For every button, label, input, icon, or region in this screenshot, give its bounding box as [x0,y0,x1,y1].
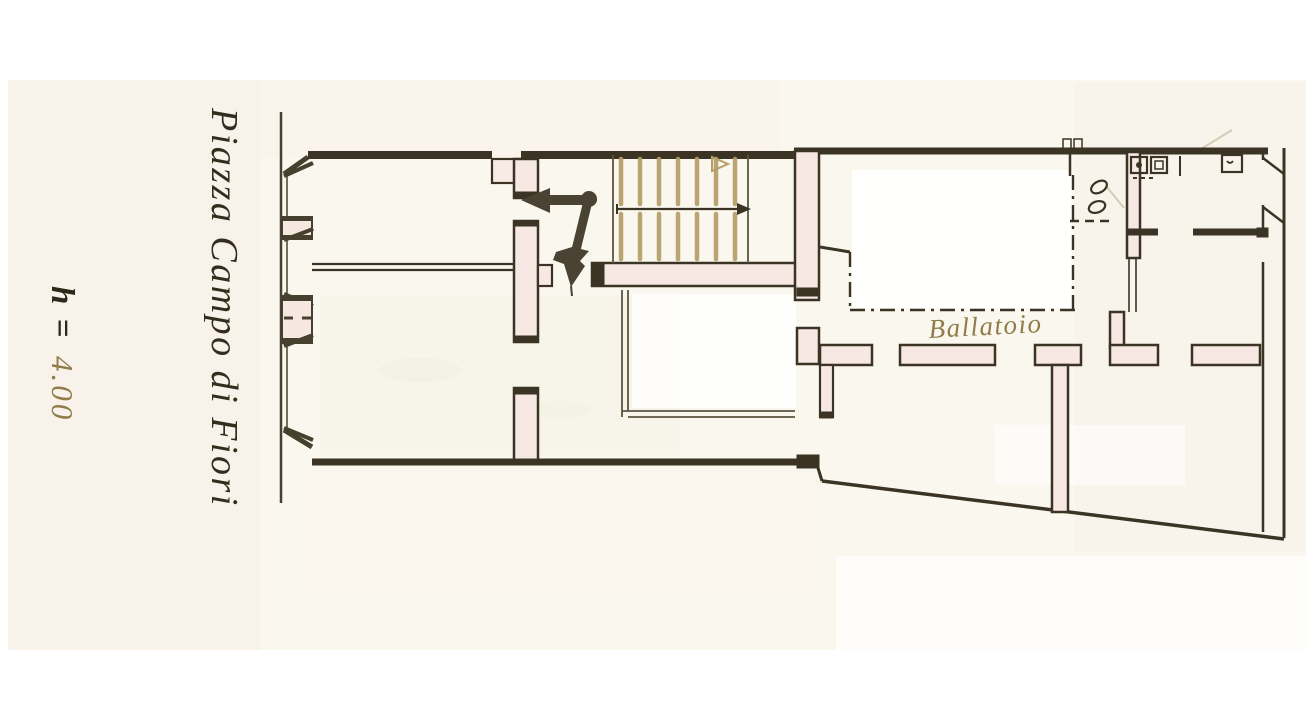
balcony-label: Ballatoio [928,308,1043,344]
tint-bottom [300,470,820,590]
parapet-bar [1035,345,1081,365]
tint-top [260,80,780,158]
balcony-label-text: Ballatoio [928,308,1043,344]
height-prefix-text: h = [44,286,80,340]
wall-end-cap [592,263,604,286]
whiteout-room [852,170,1072,308]
corridor-wall-segment [514,388,538,464]
parapet-stem [1110,312,1124,348]
height-value-text: 4.00 [45,356,80,422]
wall-foot [538,265,552,286]
parapet-bar [900,345,995,365]
tint-green-smudge [320,295,680,455]
parapet-pillar [797,328,819,364]
wall-end-cap [514,336,538,342]
corridor-wall-segment [514,221,538,342]
wall-end-cap [514,221,538,226]
parapet-stem [820,365,833,417]
green-smudge [380,358,460,382]
street-label-text: Piazza Campo di Fiori [203,107,245,508]
whiteout-courtyard [632,294,796,408]
sink-drain-icon [1136,162,1142,168]
street-label: Piazza Campo di Fiori [203,107,245,508]
stair-hall-south-wall [592,263,818,286]
floor-plan-drawing: h = 4.00 Piazza Campo di Fiori Ballatoio [0,0,1316,718]
bottom-wall-end [797,455,819,468]
parapet-bar [1192,345,1260,365]
parapet-bar [820,345,872,365]
wall-end-cap [820,412,833,418]
arrow-tail-tick [571,286,572,296]
parapet-bar [1110,345,1158,365]
stair-hall-east-wall [795,151,819,300]
whiteout-bottom [836,556,1306,651]
wall-end-cap [514,388,538,394]
whiteout-mid [995,425,1185,485]
scanned-floor-plan: h = 4.00 Piazza Campo di Fiori Ballatoio [0,0,1316,718]
wall-end-cap [797,288,818,296]
parapet-stem [1052,365,1068,512]
bathroom-east-wall [1127,152,1140,258]
